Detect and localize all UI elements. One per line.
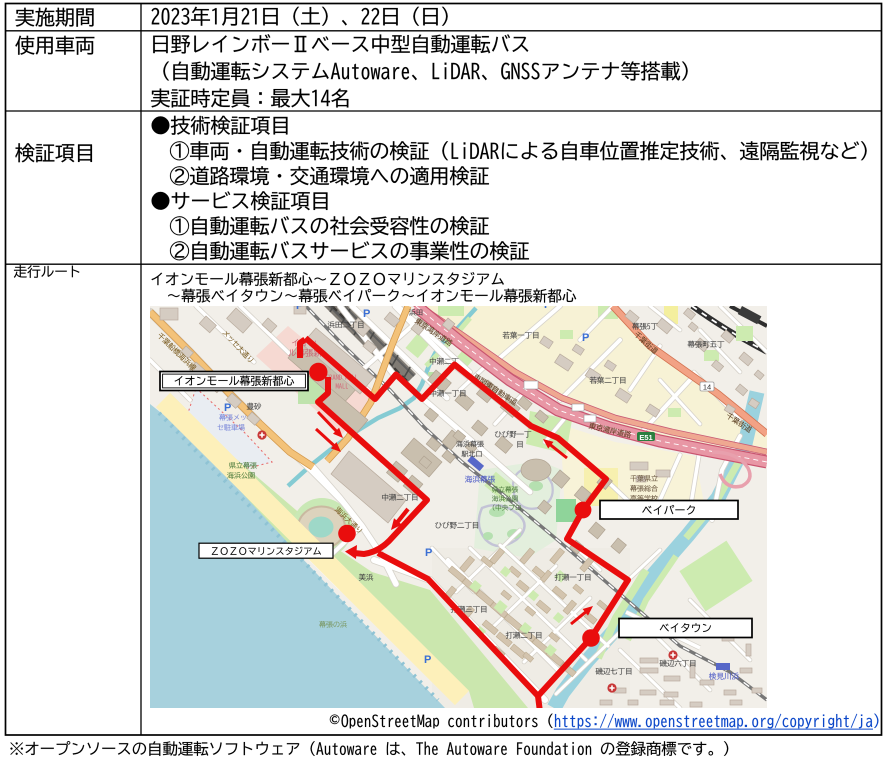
svg-text:P: P <box>582 332 589 344</box>
svg-text:P: P <box>224 402 231 414</box>
svg-text:P: P <box>425 547 432 559</box>
svg-text:P: P <box>363 308 370 320</box>
svg-text:14: 14 <box>703 383 711 392</box>
svg-text:P: P <box>424 654 431 666</box>
svg-text:E51: E51 <box>639 433 652 442</box>
